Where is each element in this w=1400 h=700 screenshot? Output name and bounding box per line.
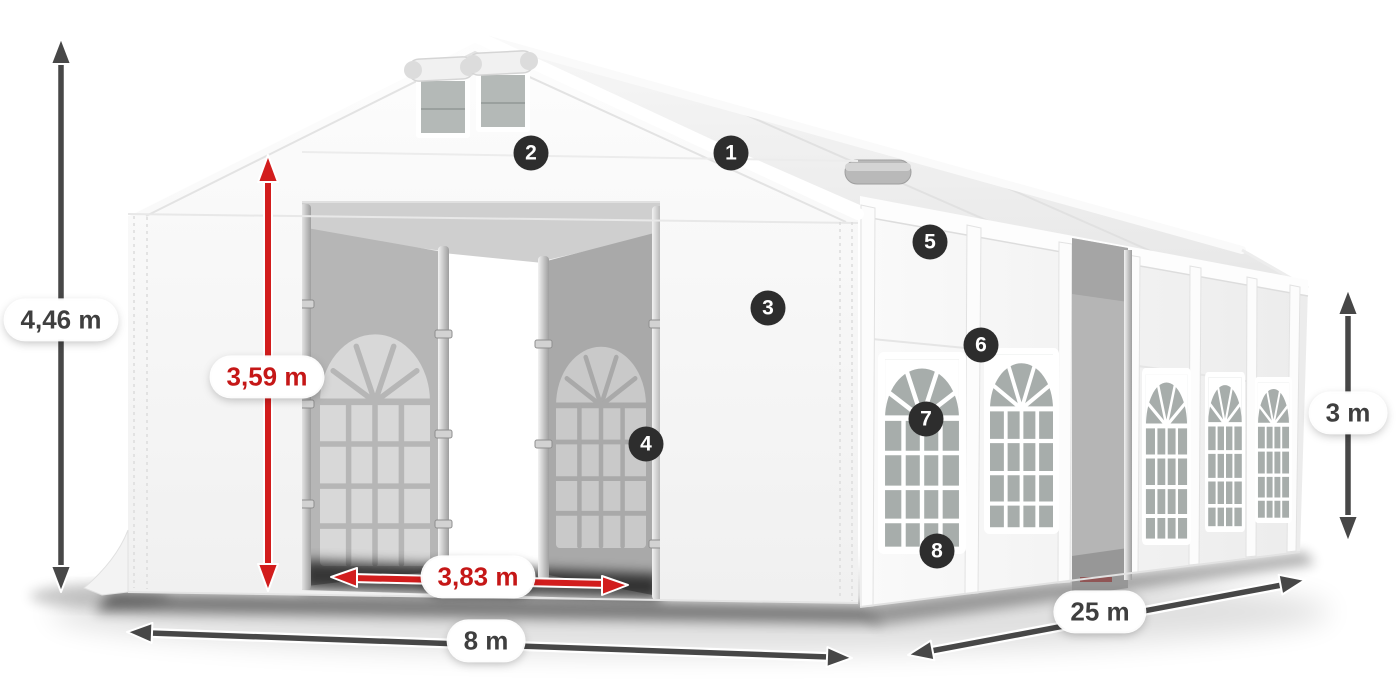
feature-marker-2[interactable]: 2 [514,136,549,171]
feature-marker-3[interactable]: 3 [751,291,786,326]
dimension-label-wall-height: 3 m [1311,393,1386,432]
marker-number: 7 [920,407,932,431]
dimension-label-total-height: 4,46 m [6,300,117,339]
dimension-label-side-length: 25 m [1055,592,1144,631]
marker-number: 1 [725,141,737,165]
feature-marker-1[interactable]: 1 [714,136,749,171]
marker-number: 3 [762,296,774,320]
tent-illustration [0,0,1400,700]
dimension-label-entrance-height: 3,59 m [212,357,323,396]
dimension-label-front-width: 8 m [449,621,524,660]
tent-dimension-diagram: 4,46 m 3,59 m 3,83 m 8 m 25 m 3 m 1 2 3 … [0,0,1400,700]
fabric-skirt [84,530,128,595]
marker-number: 6 [975,333,987,357]
dimension-label-entrance-width: 3,83 m [423,557,534,596]
feature-marker-7[interactable]: 7 [909,402,944,437]
marker-number: 5 [924,230,936,254]
feature-marker-8[interactable]: 8 [920,534,955,569]
side-entrance-opening [1072,238,1132,596]
feature-marker-6[interactable]: 6 [964,328,999,363]
entrance-interior [297,202,667,600]
rolled-curtain [845,160,911,184]
feature-marker-4[interactable]: 4 [629,427,664,462]
marker-number: 2 [525,141,537,165]
feature-marker-5[interactable]: 5 [913,225,948,260]
marker-number: 8 [931,539,943,563]
marker-number: 4 [640,432,652,456]
